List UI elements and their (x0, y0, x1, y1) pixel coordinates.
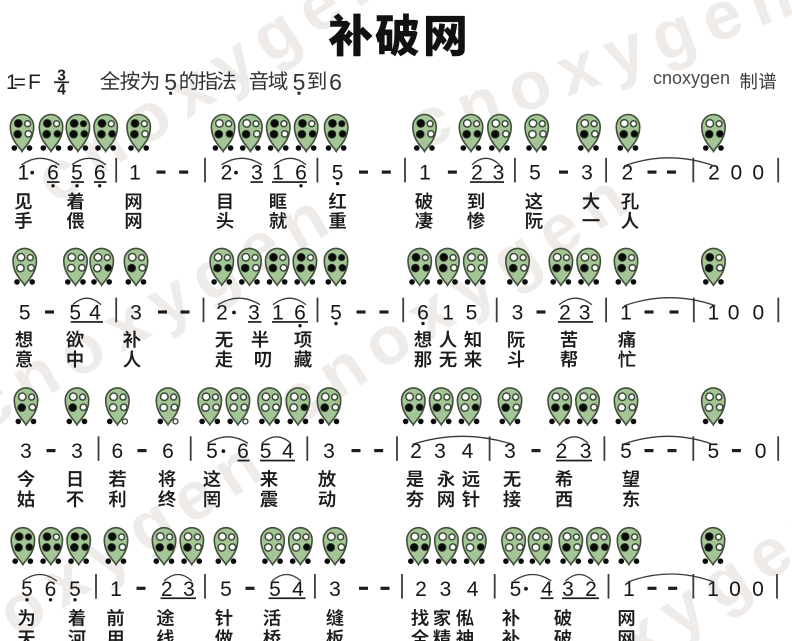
svg-text:F: F (28, 71, 41, 94)
svg-text:2: 2 (471, 162, 483, 185)
svg-text:3: 3 (251, 162, 263, 185)
svg-text:4: 4 (462, 440, 474, 463)
svg-text:1: 1 (442, 302, 454, 325)
svg-text:0: 0 (729, 578, 741, 601)
svg-text:2: 2 (559, 302, 571, 325)
svg-text:3: 3 (183, 578, 195, 601)
svg-text:6: 6 (295, 162, 307, 185)
svg-text:2: 2 (161, 578, 173, 601)
svg-text:3: 3 (581, 162, 593, 185)
svg-text:1: 1 (272, 162, 284, 185)
svg-text:3: 3 (440, 578, 452, 601)
svg-text:3: 3 (579, 302, 591, 325)
svg-text:3: 3 (323, 440, 335, 463)
svg-text:0: 0 (755, 440, 767, 463)
svg-text:5: 5 (332, 162, 344, 185)
svg-text:5: 5 (510, 578, 522, 601)
svg-text:3: 3 (329, 578, 341, 601)
svg-text:2: 2 (556, 440, 568, 463)
svg-text:1: 1 (419, 162, 431, 185)
svg-text:2: 2 (415, 578, 427, 601)
svg-text:3: 3 (580, 440, 592, 463)
svg-text:2: 2 (585, 578, 597, 601)
svg-text:cnoxygen: cnoxygen (653, 68, 730, 88)
svg-text:6: 6 (162, 440, 174, 463)
svg-text:0: 0 (731, 162, 743, 185)
svg-text:6: 6 (417, 302, 429, 325)
svg-text:3: 3 (493, 162, 505, 185)
svg-text:2: 2 (216, 302, 228, 325)
svg-text:4: 4 (89, 302, 101, 325)
svg-text:4: 4 (467, 578, 479, 601)
svg-text:0: 0 (752, 578, 764, 601)
svg-text:4: 4 (57, 81, 66, 98)
svg-text:3: 3 (434, 440, 446, 463)
svg-text:5: 5 (260, 440, 272, 463)
svg-text:5: 5 (71, 162, 83, 185)
svg-text:0: 0 (728, 302, 740, 325)
svg-text:6: 6 (237, 440, 249, 463)
svg-text:3: 3 (512, 302, 524, 325)
svg-text:4: 4 (292, 578, 304, 601)
svg-text:3: 3 (562, 578, 574, 601)
svg-text:4: 4 (282, 440, 294, 463)
svg-text:3: 3 (130, 302, 142, 325)
svg-text:5: 5 (19, 302, 31, 325)
svg-text:3: 3 (20, 440, 32, 463)
svg-text:5: 5 (293, 69, 306, 95)
svg-text:0: 0 (752, 162, 764, 185)
svg-text:5: 5 (330, 302, 342, 325)
svg-text:5: 5 (529, 162, 541, 185)
svg-text:4: 4 (541, 578, 553, 601)
svg-text:0: 0 (752, 302, 764, 325)
svg-text:2: 2 (221, 162, 233, 185)
svg-text:=: = (14, 71, 26, 94)
svg-text:5: 5 (69, 302, 81, 325)
svg-text:5: 5 (269, 578, 281, 601)
svg-text:5: 5 (164, 69, 177, 95)
svg-text:5: 5 (220, 578, 232, 601)
svg-text:6: 6 (94, 162, 106, 185)
svg-text:1: 1 (18, 162, 30, 185)
svg-text:1: 1 (110, 578, 122, 601)
svg-text:3: 3 (248, 302, 260, 325)
svg-text:5: 5 (466, 302, 478, 325)
svg-text:1: 1 (129, 162, 141, 185)
svg-text:6: 6 (329, 69, 342, 95)
svg-text:5: 5 (69, 578, 81, 601)
svg-text:6: 6 (45, 578, 57, 601)
svg-text:1: 1 (272, 302, 284, 325)
svg-text:3: 3 (71, 440, 83, 463)
svg-text:6: 6 (294, 302, 306, 325)
svg-text:6: 6 (47, 162, 59, 185)
svg-text:6: 6 (112, 440, 124, 463)
